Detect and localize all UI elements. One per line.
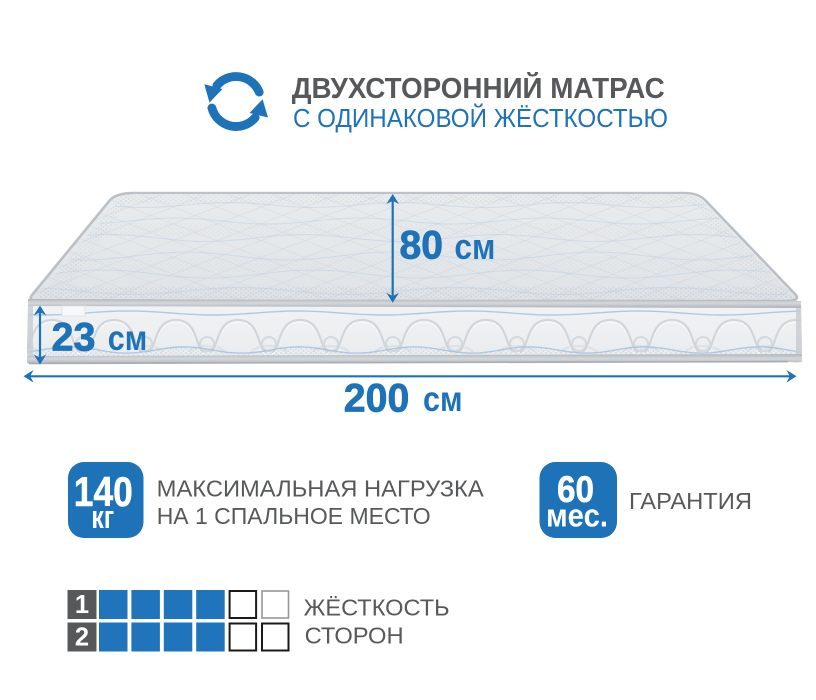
svg-text:ГАРАНТИЯ: ГАРАНТИЯ <box>629 488 752 514</box>
svg-text:см: см <box>454 226 495 267</box>
svg-text:НА 1 СПАЛЬНОЕ МЕСТО: НА 1 СПАЛЬНОЕ МЕСТО <box>157 503 431 529</box>
svg-text:СТОРОН: СТОРОН <box>305 622 404 648</box>
svg-text:ДВУХСТОРОННИЙ МАТРАС: ДВУХСТОРОННИЙ МАТРАС <box>292 72 665 105</box>
svg-text:мес.: мес. <box>546 497 608 533</box>
svg-text:1: 1 <box>75 591 89 619</box>
svg-text:МАКСИМАЛЬНАЯ НАГРУЗКА: МАКСИМАЛЬНАЯ НАГРУЗКА <box>157 475 485 501</box>
svg-text:см: см <box>108 319 148 358</box>
svg-text:200: 200 <box>344 377 410 421</box>
svg-text:23: 23 <box>52 315 96 359</box>
svg-text:2: 2 <box>75 624 89 652</box>
svg-text:80: 80 <box>400 224 444 268</box>
svg-text:ЖЁСТКОСТЬ: ЖЁСТКОСТЬ <box>304 595 450 621</box>
svg-text:С ОДИНАКОВОЙ ЖЁСТКОСТЬЮ: С ОДИНАКОВОЙ ЖЁСТКОСТЬЮ <box>293 103 668 133</box>
svg-text:кг: кг <box>91 499 114 535</box>
svg-text:см: см <box>423 380 463 419</box>
